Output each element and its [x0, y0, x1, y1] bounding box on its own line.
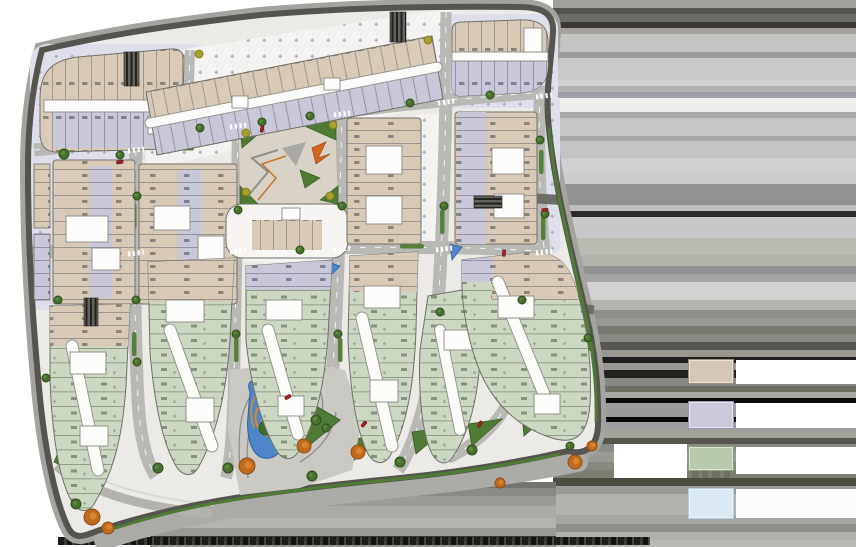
- master-plan-canvas: [0, 0, 856, 547]
- tree-highlight: [259, 119, 262, 122]
- tree-highlight: [117, 152, 120, 155]
- car: [502, 250, 506, 257]
- ramp: [124, 52, 139, 86]
- legend-green-tab: [712, 471, 720, 478]
- block-wedge-center-core: [278, 396, 304, 416]
- tree-highlight: [225, 465, 229, 469]
- tree-highlight: [397, 459, 401, 463]
- block-mid-south-core: [364, 286, 400, 308]
- road-median: [132, 332, 137, 356]
- road-median: [338, 338, 343, 362]
- block-top-left-core: [44, 100, 164, 112]
- tree-light: [329, 121, 337, 129]
- legend-green-label-box: [736, 447, 856, 474]
- legend-tan-swatch: [688, 359, 734, 384]
- block-wedge-left-2-core: [186, 398, 214, 422]
- block-wedge-left-2-core: [166, 300, 204, 322]
- road-median: [541, 216, 546, 240]
- block-wedge-left-1-core: [70, 352, 106, 374]
- block-southeast-core: [534, 394, 560, 414]
- tree-highlight: [297, 247, 300, 250]
- legend-green-swatch: [688, 446, 734, 471]
- tree-orange-highlight: [591, 443, 596, 448]
- tree-highlight: [537, 137, 540, 140]
- tree-orange-highlight: [573, 458, 579, 464]
- block-southeast-core: [498, 296, 534, 318]
- tree-highlight: [487, 92, 490, 95]
- tree-light: [326, 192, 334, 200]
- block-top-right-core: [524, 28, 542, 52]
- ramp: [84, 298, 98, 326]
- block-mid-north-core: [366, 196, 402, 224]
- block-wedge-left-1-core: [80, 426, 108, 446]
- tree-orange-highlight: [244, 461, 251, 468]
- tree-highlight: [469, 447, 473, 451]
- tree-highlight: [133, 297, 136, 300]
- block-southeast-overlay: [460, 256, 494, 282]
- block-left-1-core: [92, 248, 120, 270]
- tree-highlight: [441, 203, 444, 206]
- legend-blue-label-box: [736, 489, 856, 518]
- road-median: [234, 338, 239, 362]
- tree-highlight: [73, 501, 77, 505]
- tree-highlight: [134, 359, 137, 362]
- strip-left-tan: [34, 164, 50, 228]
- block-mid-south-core: [370, 380, 398, 402]
- legend-green-label-box: [614, 444, 687, 478]
- tree-highlight: [519, 297, 522, 300]
- tree-highlight: [134, 193, 137, 196]
- tree-highlight: [309, 473, 313, 477]
- tree-orange-highlight: [499, 480, 504, 485]
- tree-highlight: [323, 425, 326, 428]
- block-wedge-center-core: [266, 300, 302, 320]
- strip-left-lav: [34, 234, 50, 300]
- tree-highlight: [55, 297, 58, 300]
- block-wedge-left-2-overlay: [146, 258, 236, 302]
- tree-highlight: [197, 125, 200, 128]
- ramp: [390, 12, 406, 42]
- legend-lavender-label-box: [736, 403, 856, 428]
- legend-blue-swatch: [688, 488, 734, 519]
- car: [542, 208, 549, 212]
- tree-orange-highlight: [302, 442, 308, 448]
- tree-highlight: [307, 113, 310, 116]
- tree-highlight: [437, 309, 440, 312]
- tree-highlight: [43, 375, 46, 378]
- block-mid-north-core: [366, 146, 402, 174]
- block-left-1-core: [66, 216, 108, 242]
- tree-orange-highlight: [356, 448, 362, 454]
- road-median: [440, 210, 445, 234]
- tree-light: [242, 129, 250, 137]
- tree-light: [424, 36, 432, 44]
- tree-light: [242, 188, 250, 196]
- tree-highlight: [313, 417, 317, 421]
- road-top-stub1: [445, 12, 446, 98]
- block-east-north-overlay: [458, 112, 486, 244]
- legend-green-tab: [724, 471, 730, 478]
- block-plaza-south-core: [282, 208, 300, 220]
- block-mid-north: [347, 118, 421, 244]
- block-top-left-overlay: [52, 112, 156, 148]
- tree-highlight: [339, 203, 342, 206]
- tree-highlight: [407, 100, 410, 103]
- tree-orange-highlight: [106, 524, 111, 529]
- tree-highlight: [235, 207, 238, 210]
- legend-tan-label-box: [736, 360, 856, 384]
- block-left-2-core: [154, 206, 190, 230]
- block-top-right-core: [452, 52, 548, 61]
- ramp: [474, 196, 502, 208]
- tree-highlight: [335, 331, 338, 334]
- tree-highlight: [155, 465, 159, 469]
- tree-highlight: [233, 331, 236, 334]
- block-slant-lav-core: [232, 96, 248, 108]
- legend-green-tab: [692, 471, 699, 478]
- tree-light: [195, 50, 203, 58]
- legend-lavender-swatch: [688, 401, 734, 429]
- tree-highlight: [567, 443, 570, 446]
- tree-orange-highlight: [89, 512, 96, 519]
- block-slant-lav-core: [324, 78, 340, 90]
- tree-highlight: [585, 335, 588, 338]
- block-plaza-south-overlay: [252, 220, 322, 250]
- road-median: [400, 244, 424, 249]
- legend-green-tab: [702, 471, 708, 478]
- block-east-north-core: [492, 148, 524, 174]
- tree-highlight: [61, 151, 65, 155]
- road-median: [539, 150, 544, 174]
